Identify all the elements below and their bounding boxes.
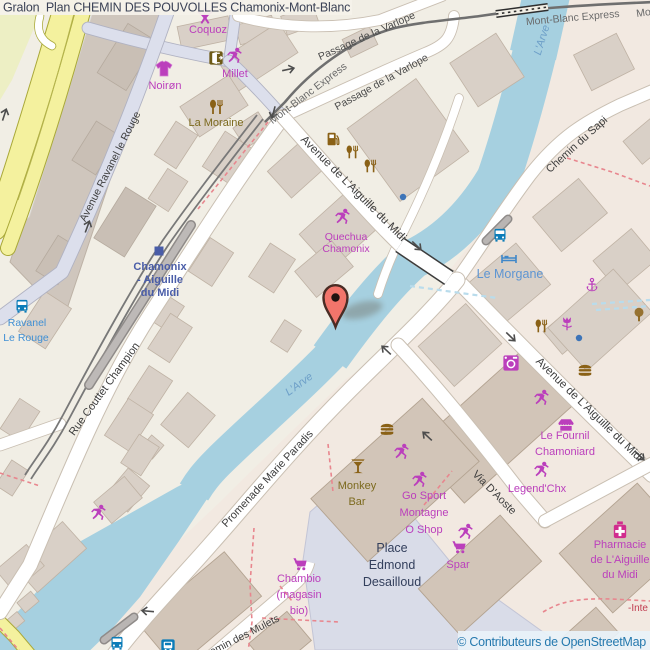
svg-text:Montagne: Montagne bbox=[400, 507, 449, 519]
svg-text:Millet: Millet bbox=[222, 68, 248, 80]
svg-text:Quechua: Quechua bbox=[325, 231, 368, 243]
svg-text:-Inte: -Inte bbox=[628, 603, 648, 614]
svg-text:Coquoz: Coquoz bbox=[189, 24, 227, 36]
svg-text:Edmond: Edmond bbox=[369, 558, 416, 572]
svg-text:Mo: Mo bbox=[636, 6, 650, 20]
svg-text:Noirøn: Noirøn bbox=[148, 80, 181, 92]
svg-text:Legend'Chx: Legend'Chx bbox=[508, 483, 567, 495]
svg-text:Le Rouge: Le Rouge bbox=[3, 332, 49, 344]
svg-text:Go Sport: Go Sport bbox=[402, 490, 446, 502]
svg-text:du Midi: du Midi bbox=[602, 569, 637, 581]
svg-text:Le Fournil: Le Fournil bbox=[541, 430, 590, 442]
svg-text:Pharmacie: Pharmacie bbox=[594, 539, 647, 551]
svg-text:Chamonix: Chamonix bbox=[322, 243, 370, 255]
svg-text:La Moraine: La Moraine bbox=[188, 117, 243, 129]
svg-text:Chamoniard: Chamoniard bbox=[535, 446, 595, 458]
svg-text:bio): bio) bbox=[290, 605, 308, 617]
svg-text:Ravanel: Ravanel bbox=[8, 317, 47, 329]
svg-text:Place: Place bbox=[376, 541, 407, 555]
svg-text:de L'Aiguille: de L'Aiguille bbox=[591, 554, 650, 566]
svg-text:du Midi: du Midi bbox=[141, 287, 180, 299]
svg-text:Spar: Spar bbox=[446, 559, 470, 571]
svg-text:© Contributeurs de OpenStreetM: © Contributeurs de OpenStreetMap bbox=[457, 635, 646, 649]
svg-text:Chamonix: Chamonix bbox=[133, 261, 187, 273]
svg-text:Monkey: Monkey bbox=[338, 480, 377, 492]
svg-text:Bar: Bar bbox=[348, 496, 365, 508]
svg-text:- Aiguille: - Aiguille bbox=[137, 274, 183, 286]
svg-text:O Shop: O Shop bbox=[405, 524, 442, 536]
svg-text:Chambio: Chambio bbox=[277, 573, 321, 585]
svg-text:Le Morgane: Le Morgane bbox=[477, 267, 544, 281]
svg-text:(magasin: (magasin bbox=[276, 589, 321, 601]
svg-text:Gralon Plan CHEMIN DES POUVOL: Gralon Plan CHEMIN DES POUVOLLES Chamoni… bbox=[3, 1, 350, 15]
svg-text:Desailloud: Desailloud bbox=[363, 575, 421, 589]
